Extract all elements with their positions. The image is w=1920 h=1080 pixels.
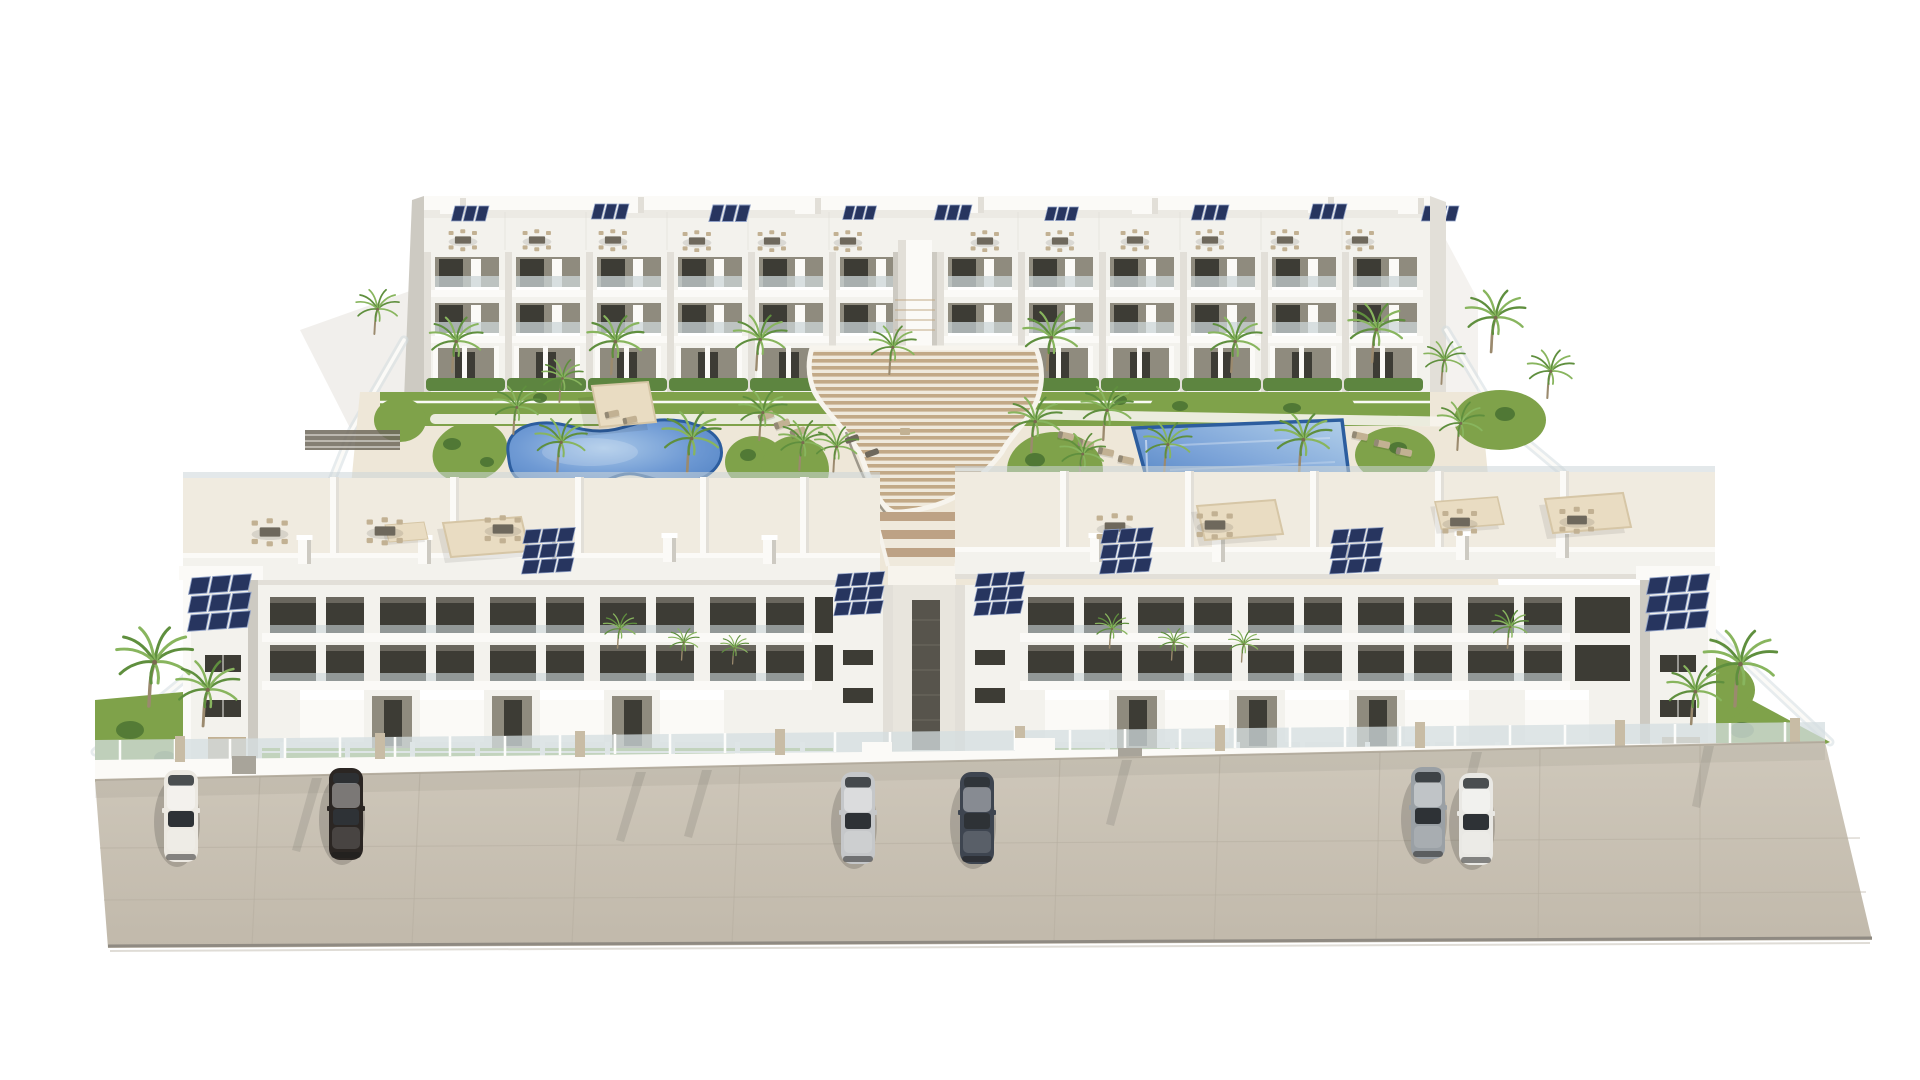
dine-back [683,230,712,252]
architectural-render: Aerial 3D architectural rendering of a w… [0,0,1920,1080]
dine-back [1121,229,1150,251]
fence-post [119,740,122,760]
dine-back [1346,229,1375,251]
dine-back [834,230,863,252]
fence-post [559,735,562,755]
palm-court [1528,350,1574,398]
fence-post [669,734,672,754]
dine-back [1271,229,1300,251]
sol3-back [1045,207,1079,221]
fence-post [1124,729,1127,749]
fence-post [834,732,837,752]
fence-post [504,736,507,756]
fence-post [1289,727,1292,747]
chimney [662,533,678,562]
dark-pergola-lounge [305,430,400,450]
fence-post [1784,722,1787,742]
fence-post [394,737,397,757]
fence-post [1069,730,1072,750]
bulkhead [795,198,821,214]
fence-pillar [775,729,785,755]
fence-pillar [1790,718,1800,744]
dine-front [252,518,289,546]
dine-front [367,517,404,545]
fence-pillar [1615,720,1625,746]
dine-front [1559,507,1594,534]
dine-front [1197,511,1234,539]
dine-back [971,230,1000,252]
sol3-back [1191,205,1229,220]
sol3-back [934,205,972,220]
bulkhead [1132,198,1158,214]
dine-back [523,229,552,251]
fence-pillar [1415,722,1425,748]
fence-post [1674,724,1677,744]
fence-pillar [375,733,385,759]
central-entrance-walkway [893,585,955,752]
dine-back [758,230,787,252]
chimney [762,535,778,564]
fence-post [1234,728,1237,748]
fence-post [1399,726,1402,746]
fence-post [1179,729,1182,749]
fence-post [449,736,452,756]
fence-post [1729,723,1732,743]
fence-pillar [175,736,185,762]
fence-post [614,734,617,754]
dine-back [1046,230,1075,252]
dine-front [485,515,522,543]
dine-back [599,229,628,251]
fence-post [1564,725,1567,745]
fence-pillar [1215,725,1225,751]
sol3-back [591,204,629,219]
sol3-back [709,205,751,222]
dine-back [449,229,478,251]
bulkhead [1398,198,1424,214]
fence-gate-left [232,756,256,774]
fence-post [339,737,342,757]
sol3-back [1309,204,1347,219]
chimney [1455,531,1471,560]
fence-post [1454,726,1457,746]
sol3-back [843,206,877,220]
chimney [297,535,313,564]
fence-post [1344,727,1347,747]
fence-pillar [575,731,585,757]
fence-post [1509,725,1512,745]
dine-front [1442,509,1477,536]
fence-post [724,733,727,753]
dine-back [1196,229,1225,251]
sol3-back [451,206,489,221]
fence-post [284,738,287,758]
fence-post [229,739,232,759]
